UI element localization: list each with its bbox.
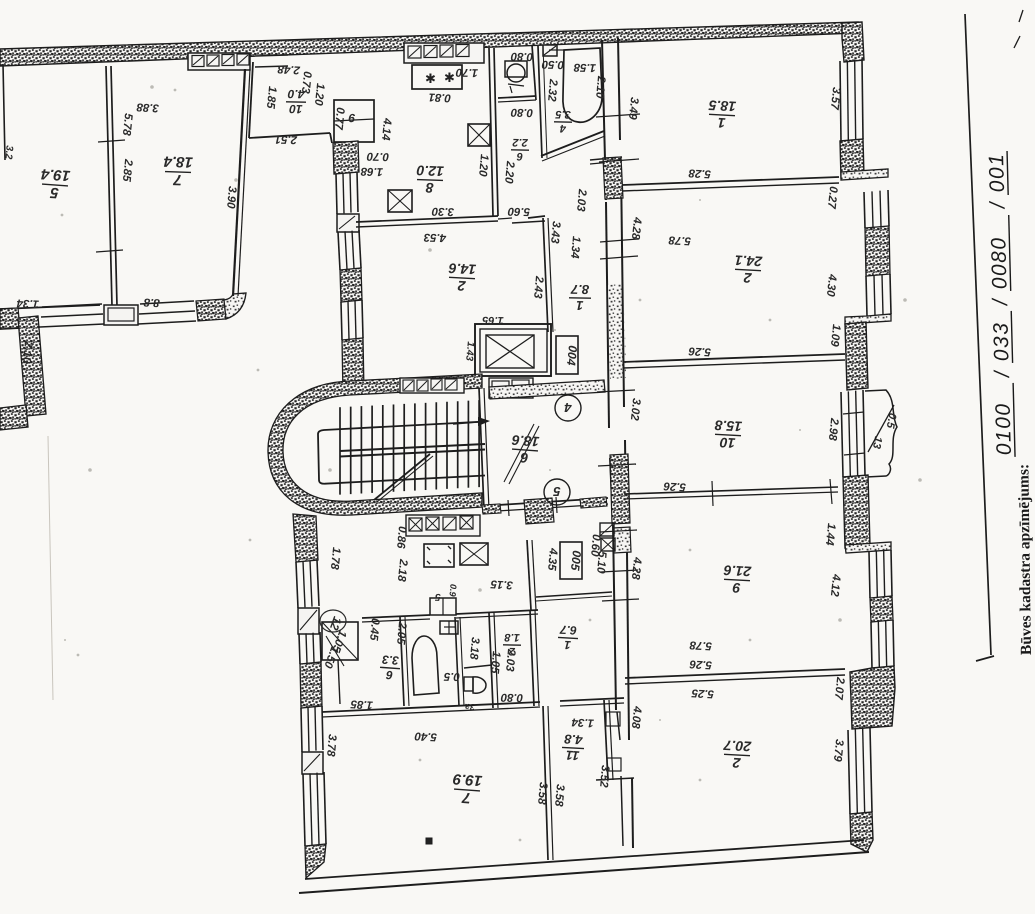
svg-text:0.81: 0.81 (428, 90, 451, 103)
svg-text:✱: ✱ (444, 70, 455, 85)
svg-text:5.26: 5.26 (663, 479, 687, 492)
svg-text:3.58: 3.58 (535, 782, 549, 806)
svg-text:1.43: 1.43 (463, 341, 476, 362)
svg-text:1.34: 1.34 (16, 296, 40, 309)
svg-text:6: 6 (516, 150, 523, 162)
svg-text:1.05: 1.05 (488, 651, 502, 675)
svg-text:5: 5 (552, 484, 560, 499)
svg-text:2.32: 2.32 (545, 78, 559, 103)
svg-text:7: 7 (173, 171, 183, 188)
svg-text:13: 13 (870, 435, 884, 449)
svg-text:18.4: 18.4 (163, 152, 193, 170)
svg-text:2.20: 2.20 (502, 160, 516, 185)
svg-text:2.2: 2.2 (512, 136, 529, 148)
svg-text:4: 4 (563, 400, 572, 415)
svg-text:4.35: 4.35 (545, 547, 559, 572)
svg-text:5: 5 (435, 591, 441, 602)
svg-text:4.28: 4.28 (629, 216, 643, 241)
svg-text:004: 004 (564, 345, 580, 367)
svg-text:3.90: 3.90 (224, 186, 238, 210)
svg-text:0.9: 0.9 (447, 584, 458, 597)
svg-text:1.44: 1.44 (823, 523, 837, 547)
svg-text:10: 10 (719, 435, 736, 452)
svg-text:2.10: 2.10 (593, 75, 607, 100)
svg-text:1.68: 1.68 (360, 165, 383, 177)
svg-text:0.50: 0.50 (541, 58, 564, 70)
svg-text:1.20: 1.20 (312, 83, 326, 107)
svg-text:9: 9 (732, 580, 741, 596)
svg-text:/: / (991, 369, 1014, 380)
svg-text:14.6: 14.6 (448, 260, 476, 277)
svg-text:3.49: 3.49 (626, 97, 640, 121)
svg-text:4.53: 4.53 (423, 231, 447, 243)
svg-text:8.7: 8.7 (570, 282, 589, 297)
svg-text:1: 1 (717, 115, 726, 131)
svg-text:12.0: 12.0 (416, 163, 444, 180)
svg-text:4.12: 4.12 (828, 573, 842, 598)
svg-text:2: 2 (457, 278, 467, 294)
svg-text:✱: ✱ (425, 71, 436, 86)
svg-text:6.7: 6.7 (558, 623, 577, 638)
svg-text:2.85: 2.85 (120, 158, 134, 183)
svg-text:4.08: 4.08 (629, 705, 643, 730)
svg-text:1.85: 1.85 (350, 697, 374, 710)
svg-text:2.48: 2.48 (277, 62, 302, 75)
svg-text:8: 8 (425, 180, 434, 196)
svg-text:3.18: 3.18 (467, 637, 481, 661)
svg-text:0100: 0100 (992, 402, 1016, 455)
svg-text:2.10: 2.10 (20, 340, 34, 365)
svg-text:0.27: 0.27 (825, 186, 839, 210)
svg-text:5.60: 5.60 (507, 205, 530, 217)
svg-text:1.34: 1.34 (571, 715, 595, 728)
svg-text:24.1: 24.1 (734, 252, 763, 269)
svg-text:5.26: 5.26 (689, 657, 713, 670)
svg-text:0.5: 0.5 (443, 670, 460, 682)
svg-text:5.26: 5.26 (688, 344, 712, 357)
svg-text:/: / (989, 297, 1012, 308)
svg-text:2.07: 2.07 (832, 676, 846, 701)
svg-text:0.77: 0.77 (332, 107, 346, 131)
svg-text:4.30: 4.30 (824, 273, 838, 298)
svg-text:0.80: 0.80 (500, 691, 523, 703)
svg-text:1.8: 1.8 (504, 631, 520, 643)
svg-text:5.25: 5.25 (691, 686, 715, 699)
svg-text:1.65: 1.65 (481, 314, 503, 326)
svg-text:4.28: 4.28 (629, 556, 643, 581)
svg-text:2: 2 (732, 755, 742, 771)
svg-text:5.28: 5.28 (688, 166, 712, 179)
svg-text:0.73: 0.73 (299, 71, 313, 95)
svg-text:3.57: 3.57 (828, 87, 842, 111)
svg-text:/: / (986, 200, 1009, 211)
svg-text:1: 1 (564, 638, 572, 652)
svg-text:1.78: 1.78 (328, 547, 342, 571)
svg-text:3.52: 3.52 (597, 765, 611, 789)
svg-text:5.10: 5.10 (594, 551, 608, 575)
svg-text:15.8: 15.8 (714, 417, 742, 434)
svg-text:4.8: 4.8 (563, 732, 584, 748)
svg-text:2.03: 2.03 (503, 648, 517, 673)
svg-text:8.8: 8.8 (143, 296, 160, 309)
svg-text:3.5: 3.5 (555, 108, 571, 120)
svg-text:1: 1 (576, 298, 583, 313)
svg-text:5.78: 5.78 (120, 113, 134, 137)
svg-text:1.09: 1.09 (828, 324, 842, 348)
svg-text:0.80: 0.80 (510, 106, 533, 118)
svg-text:18.6: 18.6 (511, 432, 540, 450)
svg-text:3.15: 3.15 (490, 577, 514, 590)
svg-text:033: 033 (990, 321, 1014, 361)
svg-text:Būves kadastra apzīmējums:: Būves kadastra apzīmējums: (1015, 464, 1035, 655)
svg-text:2.98: 2.98 (826, 417, 840, 442)
svg-text:3.79: 3.79 (831, 739, 845, 763)
svg-text:5.40: 5.40 (414, 729, 438, 742)
svg-text:2.05: 2.05 (394, 621, 408, 646)
svg-text:18.5: 18.5 (708, 97, 736, 114)
svg-text:3.78: 3.78 (324, 734, 338, 758)
svg-text:0.80: 0.80 (510, 50, 533, 62)
svg-text:1.20: 1.20 (476, 154, 490, 178)
svg-text:20.7: 20.7 (722, 737, 752, 755)
svg-text:2: 2 (743, 270, 753, 286)
svg-text:4: 4 (560, 122, 567, 134)
svg-text:2.03: 2.03 (574, 188, 588, 213)
svg-text:2.51: 2.51 (275, 133, 299, 145)
svg-text:005: 005 (568, 550, 584, 572)
svg-text:001: 001 (985, 152, 1009, 192)
svg-text:0.86: 0.86 (394, 526, 408, 550)
svg-text:4.14: 4.14 (379, 117, 393, 142)
svg-text:19.4: 19.4 (40, 165, 71, 184)
svg-text:3.58: 3.58 (552, 784, 566, 808)
svg-text:2.43: 2.43 (531, 275, 545, 300)
svg-text:2.18: 2.18 (395, 558, 409, 583)
svg-text:3.02: 3.02 (628, 398, 642, 422)
svg-text:1.34: 1.34 (568, 236, 582, 260)
svg-text:21.6: 21.6 (723, 562, 752, 579)
svg-text:11: 11 (565, 748, 579, 764)
svg-text:3.30: 3.30 (431, 205, 454, 217)
svg-text:0080: 0080 (987, 236, 1011, 289)
svg-text:6: 6 (520, 450, 529, 467)
svg-text:1.85: 1.85 (264, 86, 278, 110)
svg-text:3.3: 3.3 (381, 652, 399, 667)
svg-text:3.2: 3.2 (2, 145, 14, 160)
svg-text:0.70: 0.70 (366, 150, 389, 162)
svg-text:10: 10 (289, 102, 303, 116)
svg-text:1.58: 1.58 (573, 61, 596, 73)
svg-text:5.78: 5.78 (668, 233, 692, 246)
svg-text:3.88: 3.88 (136, 100, 160, 113)
svg-text:3.43: 3.43 (548, 221, 562, 245)
svg-text:6: 6 (385, 668, 393, 682)
svg-text:1.70: 1.70 (455, 66, 478, 78)
svg-text:9: 9 (348, 111, 355, 125)
svg-text:0.45: 0.45 (367, 618, 381, 642)
svg-text:19.9: 19.9 (452, 770, 483, 789)
svg-text:5.78: 5.78 (689, 638, 713, 651)
